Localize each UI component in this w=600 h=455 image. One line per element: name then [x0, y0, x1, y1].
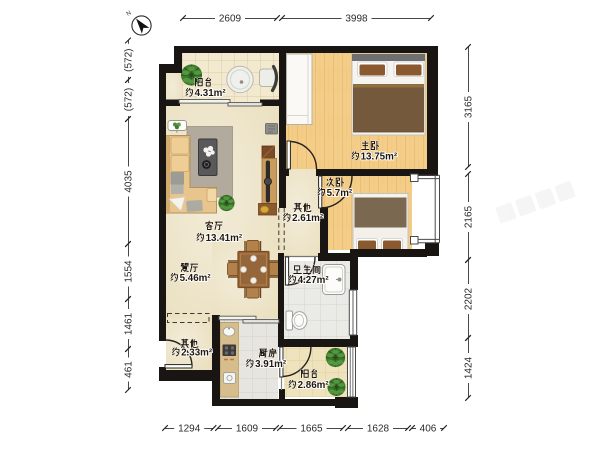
svg-text:1424: 1424: [464, 356, 475, 379]
svg-text:3165: 3165: [464, 95, 475, 118]
svg-text:(572): (572): [124, 49, 135, 72]
svg-text:4.31m²: 4.31m²: [195, 88, 227, 99]
svg-text:461: 461: [124, 361, 135, 378]
svg-text:13.41m²: 13.41m²: [206, 233, 243, 244]
svg-text:1609: 1609: [236, 424, 259, 435]
svg-text:2.33m²: 2.33m²: [181, 348, 213, 359]
svg-text:3.91m²: 3.91m²: [255, 359, 287, 370]
svg-text:4035: 4035: [124, 170, 135, 193]
svg-text:2165: 2165: [464, 205, 475, 228]
svg-text:5.46m²: 5.46m²: [180, 273, 212, 284]
svg-text:2609: 2609: [219, 14, 242, 25]
svg-text:1554: 1554: [124, 260, 135, 283]
svg-text:2202: 2202: [464, 287, 475, 310]
svg-text:5.7m²: 5.7m²: [327, 188, 353, 199]
svg-text:(572): (572): [124, 88, 135, 111]
svg-text:4.27m²: 4.27m²: [298, 275, 330, 286]
svg-text:1628: 1628: [367, 424, 390, 435]
svg-text:3998: 3998: [345, 14, 368, 25]
svg-text:2.86m²: 2.86m²: [298, 380, 330, 391]
svg-text:1665: 1665: [300, 424, 323, 435]
svg-text:1461: 1461: [124, 312, 135, 335]
svg-text:2.61m²: 2.61m²: [292, 213, 324, 224]
svg-text:13.75m²: 13.75m²: [361, 152, 398, 163]
svg-text:406: 406: [420, 424, 437, 435]
svg-text:1294: 1294: [178, 424, 201, 435]
